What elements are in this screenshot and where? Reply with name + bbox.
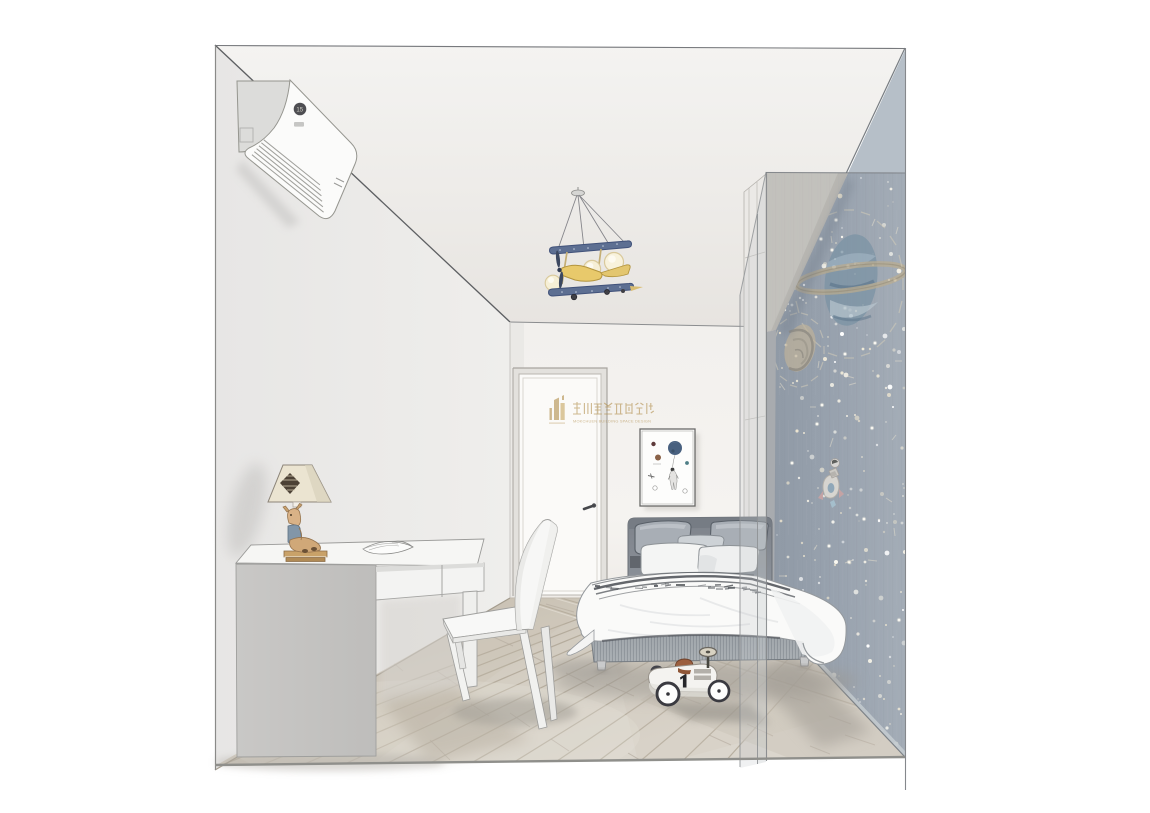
svg-text:15: 15 [296, 108, 303, 114]
svg-text:MOKCHUEN BUILDING SPACE DESIGN: MOKCHUEN BUILDING SPACE DESIGN [573, 419, 651, 424]
